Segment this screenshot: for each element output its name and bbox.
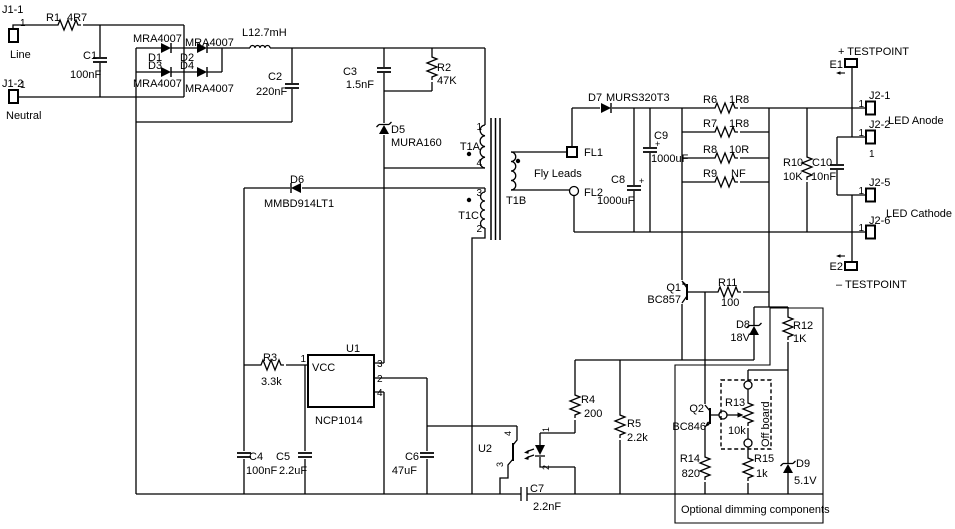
d1-part-label: MRA4007 — [133, 33, 182, 45]
d2-part-label: MRA4007 — [185, 37, 234, 49]
r7-value-label: 1R8 — [729, 118, 749, 130]
r3-value-label: 3.3k — [261, 376, 282, 388]
c3-value-label: 1.5nF — [346, 79, 374, 91]
j1-2-pin-label: 1 — [20, 80, 26, 91]
c8-ref-label: C8 — [611, 174, 625, 186]
u1-pin1-label: 1 — [300, 354, 306, 365]
schematic-canvas: J1-1 1 Line J1-2 1 Neutral R1 4R7 C1 100… — [0, 0, 955, 529]
u2-pin1-label: 1 — [541, 427, 551, 432]
c5-value-label: 2.2uF — [279, 465, 307, 477]
r2-value-label: 47K — [437, 75, 457, 87]
e1-testpoint-label: + TESTPOINT — [838, 46, 909, 58]
testpoint-e1-symbol — [845, 59, 857, 67]
c5-ref-label: C5 — [276, 451, 290, 463]
l1-label: L12.7mH — [242, 27, 287, 39]
q2-ref-label: Q2 — [689, 403, 704, 415]
t1b-label: T1B — [506, 195, 526, 207]
j2-1-ref-label: J2-1 — [869, 90, 890, 102]
connector-j1-1 — [9, 29, 18, 42]
c9-polarity-label: + — [655, 139, 660, 149]
c1-value-label: 100nF — [70, 69, 101, 81]
neutral-label: Neutral — [6, 110, 41, 122]
diode-d7-symbol — [601, 103, 611, 113]
fly-leads-label: Fly Leads — [534, 168, 582, 180]
c2-value-label: 220nF — [256, 86, 287, 98]
testpoint-e2-arrowhead — [836, 254, 841, 257]
connector-j2-5 — [866, 189, 875, 202]
r15-value-label: 1k — [756, 468, 768, 480]
pot-terminal-bottom — [744, 439, 752, 447]
r12-value-label: 1K — [793, 333, 807, 345]
c4-ref-label: C4 — [249, 451, 263, 463]
r5-value-label: 2.2k — [627, 432, 648, 444]
j1-1-pin-label: 1 — [20, 18, 26, 29]
u2-pin4-label: 4 — [503, 431, 513, 436]
d8-value-label: 18V — [730, 332, 750, 344]
r1-ref-label: R1 — [46, 12, 60, 24]
t1-pin2-label: 2 — [476, 224, 482, 235]
diode-d5-symbol — [377, 122, 392, 134]
e2-ref-label: E2 — [830, 261, 843, 273]
d4-part-label: MRA4007 — [185, 83, 234, 95]
d6-ref-label: D6 — [290, 174, 304, 186]
t1-pin4-label: 4 — [476, 158, 482, 169]
testpoint-e1-arrowhead — [836, 71, 841, 74]
u1-vcc-label: VCC — [312, 362, 335, 374]
d5-part-label: MURA160 — [391, 137, 442, 149]
u1-pin3-label: 3 — [377, 359, 383, 370]
r8-ref-label: R8 — [703, 144, 717, 156]
d4-ref-label: D4 — [180, 60, 194, 72]
connector-j2-1 — [866, 102, 875, 115]
c7-ref-label: C7 — [530, 483, 544, 495]
c6-ref-label: C6 — [405, 451, 419, 463]
j2-2-pin-label: 1 — [858, 128, 864, 139]
c8-polarity-label: + — [639, 176, 644, 186]
r7-ref-label: R7 — [703, 118, 717, 130]
e2-testpoint-label: – TESTPOINT — [836, 279, 907, 291]
fl1-label: FL1 — [584, 147, 603, 159]
diode-d3-symbol — [161, 67, 171, 77]
j2-2-pin-alt-label: 1 — [869, 149, 875, 160]
r4-ref-label: R4 — [581, 394, 595, 406]
c4-value-label: 100nF — [246, 465, 277, 477]
transformer-core — [491, 118, 500, 240]
r1-value-label: 4R7 — [67, 12, 87, 24]
j2-6-ref-label: J2-6 — [869, 215, 890, 227]
q1-part-label: BC857 — [647, 294, 681, 306]
terminal-fl2 — [570, 187, 579, 196]
testpoint-e2-symbol — [845, 262, 857, 270]
t1-pin1-label: 1 — [476, 122, 482, 133]
polarity-dot-t1b — [516, 159, 520, 163]
c9-value-label: 1000uF — [651, 153, 689, 165]
c1-ref-label: C1 — [83, 50, 97, 62]
r2-ref-label: R2 — [437, 62, 451, 74]
led-anode-label: LED Anode — [888, 115, 944, 127]
d5-ref-label: D5 — [391, 124, 405, 136]
t1c-label: T1C — [458, 210, 479, 222]
c8-value-label: 1000uF — [597, 195, 635, 207]
resistor-r15-symbol — [743, 455, 753, 481]
d7-part-label: MURS320T3 — [606, 92, 670, 104]
connector-j1-2 — [9, 90, 18, 103]
u2-pin2-label: 2 — [541, 465, 551, 470]
c10-ref-label: C10 — [812, 157, 832, 169]
capacitor-c6-symbol — [420, 453, 434, 457]
j2-1-pin-label: 1 — [858, 99, 864, 110]
r13-value-label: 10k — [728, 425, 746, 437]
d3-ref-label: D3 — [148, 60, 162, 72]
j2-5-ref-label: J2-5 — [869, 177, 890, 189]
c10-value-label: 10nF — [811, 171, 836, 183]
r15-ref-label: R15 — [754, 453, 774, 465]
u1-pin2-label: 2 — [377, 374, 383, 385]
t1-pin3-label: 3 — [476, 188, 482, 199]
q1-ref-label: Q1 — [666, 282, 681, 294]
led-cathode-label: LED Cathode — [886, 208, 952, 220]
capacitor-c3-symbol — [377, 68, 391, 72]
r6-value-label: 1R8 — [729, 94, 749, 106]
resistor-r5-symbol — [615, 412, 625, 438]
capacitor-c5-symbol — [298, 453, 312, 457]
winding-t1b-symbol — [511, 152, 516, 190]
capacitor-c8-symbol — [627, 186, 641, 190]
r10-value-label: 10K — [783, 171, 803, 183]
connector-j2-6 — [866, 226, 875, 239]
t1a-label: T1A — [460, 141, 481, 153]
j1-1-ref-label: J1-1 — [2, 4, 23, 16]
terminal-fl1 — [567, 147, 577, 157]
c3-ref-label: C3 — [343, 66, 357, 78]
r9-ref-label: R9 — [703, 168, 717, 180]
u2-ref-label: U2 — [478, 443, 492, 455]
resistor-r2-symbol — [427, 54, 437, 80]
off-board-label: Off board — [760, 401, 772, 447]
j2-5-pin-label: 1 — [858, 186, 864, 197]
r5-ref-label: R5 — [627, 418, 641, 430]
e1-ref-label: E1 — [830, 59, 843, 71]
u1-ref-label: U1 — [346, 343, 360, 355]
c7-value-label: 2.2nF — [533, 501, 561, 513]
r10-ref-label: R10 — [783, 157, 803, 169]
connector-j2-2 — [866, 131, 875, 144]
resistor-r4-symbol — [570, 392, 580, 418]
r14-ref-label: R14 — [680, 453, 700, 465]
r9-value-label: NF — [731, 168, 746, 180]
pot-terminal-top — [744, 381, 752, 389]
r3-ref-label: R3 — [263, 352, 277, 364]
diode-d4-symbol — [197, 67, 207, 77]
d7-ref-label: D7 — [588, 92, 602, 104]
r12-ref-label: R12 — [793, 320, 813, 332]
c6-value-label: 47uF — [392, 465, 417, 477]
r11-value-label: 100 — [721, 297, 739, 309]
q2-part-label: BC846 — [672, 421, 706, 433]
r13-ref-label: R13 — [725, 397, 745, 409]
u1-pin4-label: 4 — [377, 388, 383, 399]
r6-ref-label: R6 — [703, 94, 717, 106]
u2-pin3-label: 3 — [495, 462, 505, 467]
r8-value-label: 10R — [729, 144, 749, 156]
d3-part-label: MRA4007 — [133, 78, 182, 90]
j2-6-pin-label: 1 — [858, 223, 864, 234]
polarity-dot-t1c — [467, 198, 471, 202]
r11-ref-label: R11 — [718, 277, 737, 289]
d8-ref-label: D8 — [736, 319, 750, 331]
resistor-r12-symbol — [783, 314, 793, 340]
transistor-q1-symbol — [682, 281, 687, 303]
transistor-q2-symbol — [705, 405, 712, 427]
u1-part-label: NCP1014 — [315, 415, 363, 427]
pot-terminal-wiper — [719, 411, 727, 419]
d9-value-label: 5.1V — [794, 475, 817, 487]
d6-part-label: MMBD914LT1 — [264, 198, 334, 210]
optional-dimming-label: Optional dimming components — [681, 504, 830, 516]
line-label: Line — [10, 49, 31, 61]
inductor-l1-symbol — [250, 46, 270, 49]
r14-value-label: 820 — [682, 468, 700, 480]
r4-value-label: 200 — [584, 408, 602, 420]
c2-ref-label: C2 — [268, 71, 282, 83]
d9-ref-label: D9 — [796, 458, 810, 470]
resistor-r14-symbol — [700, 454, 710, 480]
schematic-page: J1-1 1 Line J1-2 1 Neutral R1 4R7 C1 100… — [0, 0, 955, 529]
